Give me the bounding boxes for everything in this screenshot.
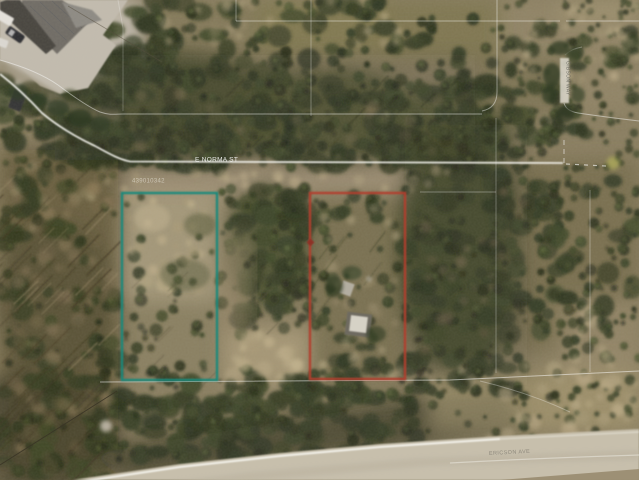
svg-text:GIBSON WAY: GIBSON WAY: [565, 61, 571, 96]
svg-text:439010342: 439010342: [132, 179, 165, 185]
svg-text:E NORMA ST: E NORMA ST: [195, 157, 238, 164]
